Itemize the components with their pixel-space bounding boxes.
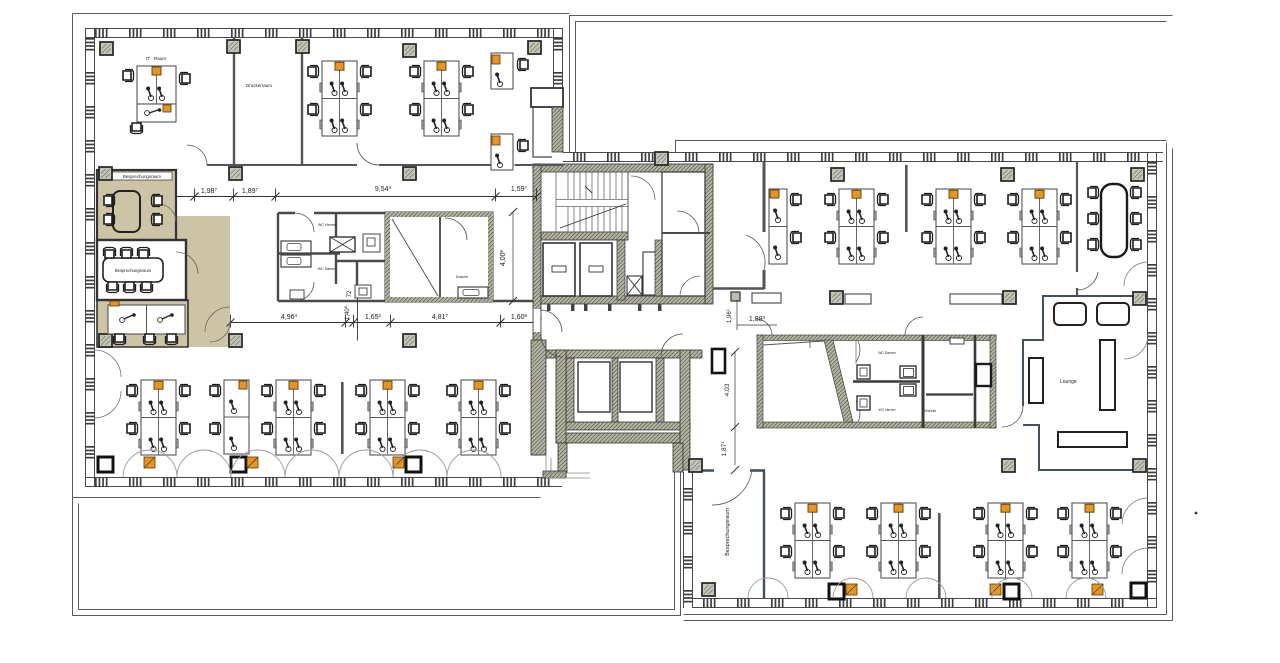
svg-text:Dusche: Dusche <box>456 275 468 279</box>
svg-text:WC Herren: WC Herren <box>318 223 336 227</box>
svg-text:Druckerraum: Druckerraum <box>246 83 272 88</box>
svg-text:IT - Raum: IT - Raum <box>146 56 166 61</box>
svg-text:Technik: Technik <box>924 409 936 413</box>
svg-text:Besprechungsraum: Besprechungsraum <box>123 174 161 179</box>
svg-text:WC Herren: WC Herren <box>879 408 896 412</box>
svg-text:WC Damen: WC Damen <box>878 351 896 355</box>
svg-text:WC Damen: WC Damen <box>318 267 337 271</box>
svg-text:Besprechungsraum: Besprechungsraum <box>115 268 152 273</box>
svg-text:Lounge: Lounge <box>1060 379 1077 385</box>
svg-text:Besprechungsraum: Besprechungsraum <box>725 508 731 556</box>
svg-text:4,03: 4,03 <box>724 383 731 396</box>
svg-text:72: 72 <box>347 290 353 297</box>
